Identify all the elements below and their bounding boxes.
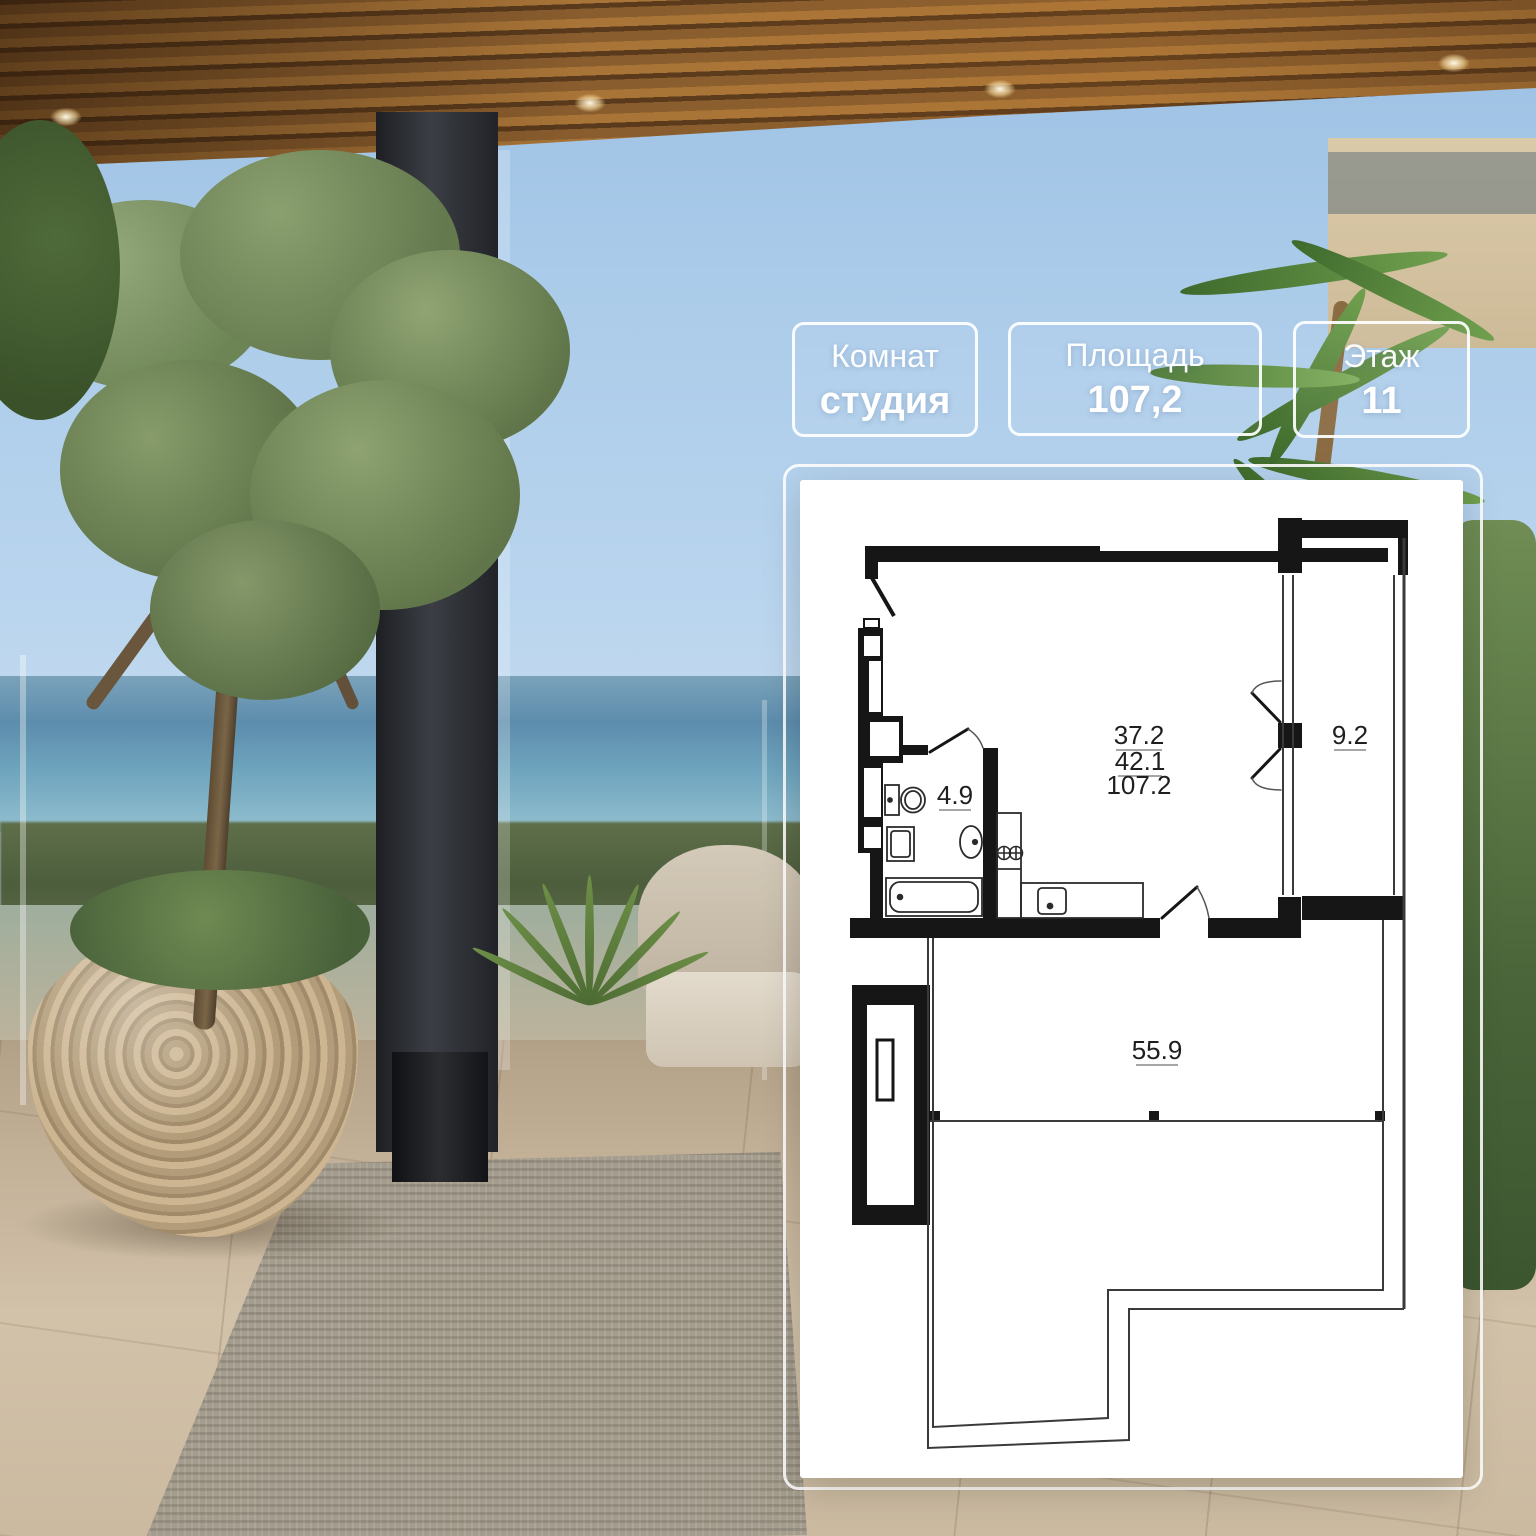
- area-labels: 37.2 42.1 107.2 4.9 9.2 55.9: [937, 720, 1368, 1065]
- area-badge-label: Площадь: [1065, 339, 1204, 371]
- rooms-badge: Комнат студия: [792, 322, 978, 437]
- entrance-door: [864, 578, 894, 628]
- area-badge: Площадь 107,2: [1008, 322, 1262, 436]
- kitchen-counter: [997, 813, 1143, 918]
- area-total: 107.2: [1106, 770, 1171, 800]
- listing-image: 37.2 42.1 107.2 4.9 9.2 55.9 Комнат студ…: [0, 0, 1536, 1536]
- planter-greens: [70, 870, 370, 990]
- bathtub: [886, 878, 982, 916]
- rooms-badge-value: студия: [820, 382, 951, 420]
- toilet: [885, 785, 925, 815]
- olive-foliage: [150, 520, 380, 700]
- pillar-base: [392, 1052, 488, 1182]
- rooms-badge-label: Комнат: [831, 340, 939, 372]
- ceiling-light: [568, 90, 612, 116]
- ceiling-light: [978, 76, 1022, 102]
- bathroom-door: [930, 729, 983, 752]
- balcony-doors: [1252, 681, 1281, 790]
- terrace-area: 55.9: [1132, 1035, 1183, 1065]
- floor-plan: 37.2 42.1 107.2 4.9 9.2 55.9: [800, 480, 1463, 1478]
- bathroom-sink: [960, 826, 982, 858]
- washing-machine: [887, 827, 914, 861]
- glass-panel-edge: [20, 655, 26, 1105]
- kitchen-sink: [1038, 888, 1066, 914]
- grass-plant: [505, 845, 675, 1005]
- balcony-glazing: [1283, 538, 1404, 1309]
- building-glass-band: [1328, 152, 1536, 214]
- terrace-outline: [928, 920, 1404, 1448]
- ceiling-light: [1432, 50, 1476, 76]
- balcony-area: 9.2: [1332, 720, 1368, 750]
- bathroom-area: 4.9: [937, 780, 973, 810]
- floor-badge-value: 11: [1361, 382, 1401, 420]
- stove-burners: [997, 846, 1023, 860]
- shaft-window: [877, 1040, 893, 1100]
- floor-badge: Этаж 11: [1293, 321, 1470, 438]
- floor-badge-label: Этаж: [1343, 340, 1420, 372]
- terrace-door: [1162, 887, 1209, 918]
- area-badge-value: 107,2: [1087, 381, 1182, 419]
